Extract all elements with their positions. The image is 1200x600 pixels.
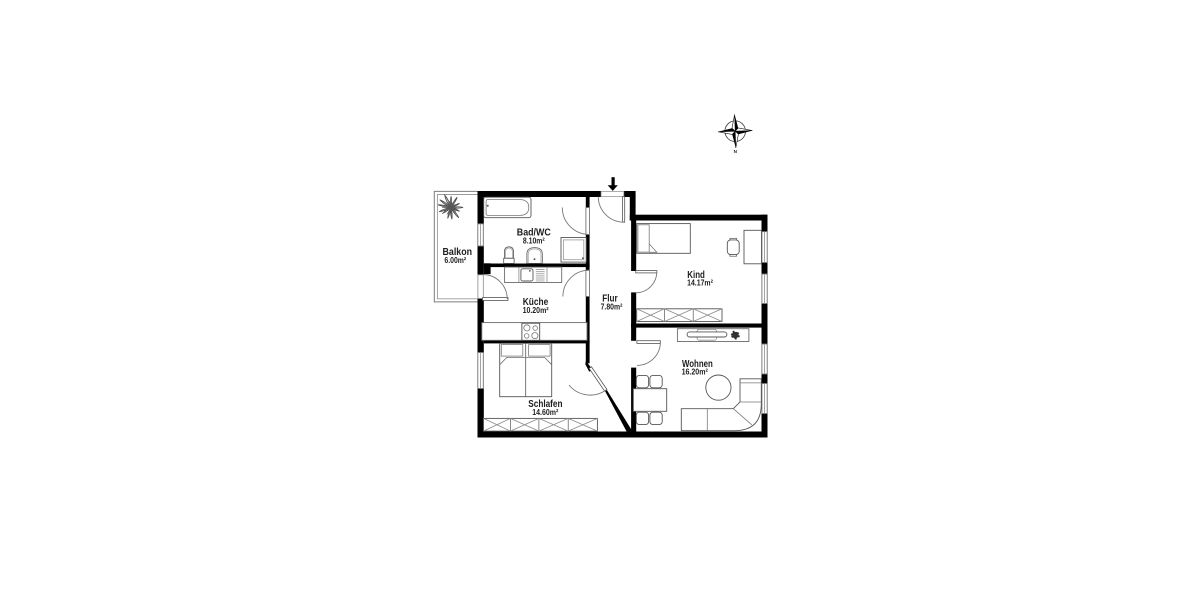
svg-text:7.80m²: 7.80m² [601, 302, 623, 311]
svg-text:8.10m²: 8.10m² [523, 236, 545, 245]
svg-text:14.17m²: 14.17m² [687, 279, 713, 288]
svg-text:16.20m²: 16.20m² [682, 368, 708, 377]
svg-text:6.00m²: 6.00m² [444, 256, 466, 265]
svg-text:14.60m²: 14.60m² [532, 408, 558, 417]
svg-text:10.20m²: 10.20m² [523, 306, 549, 315]
